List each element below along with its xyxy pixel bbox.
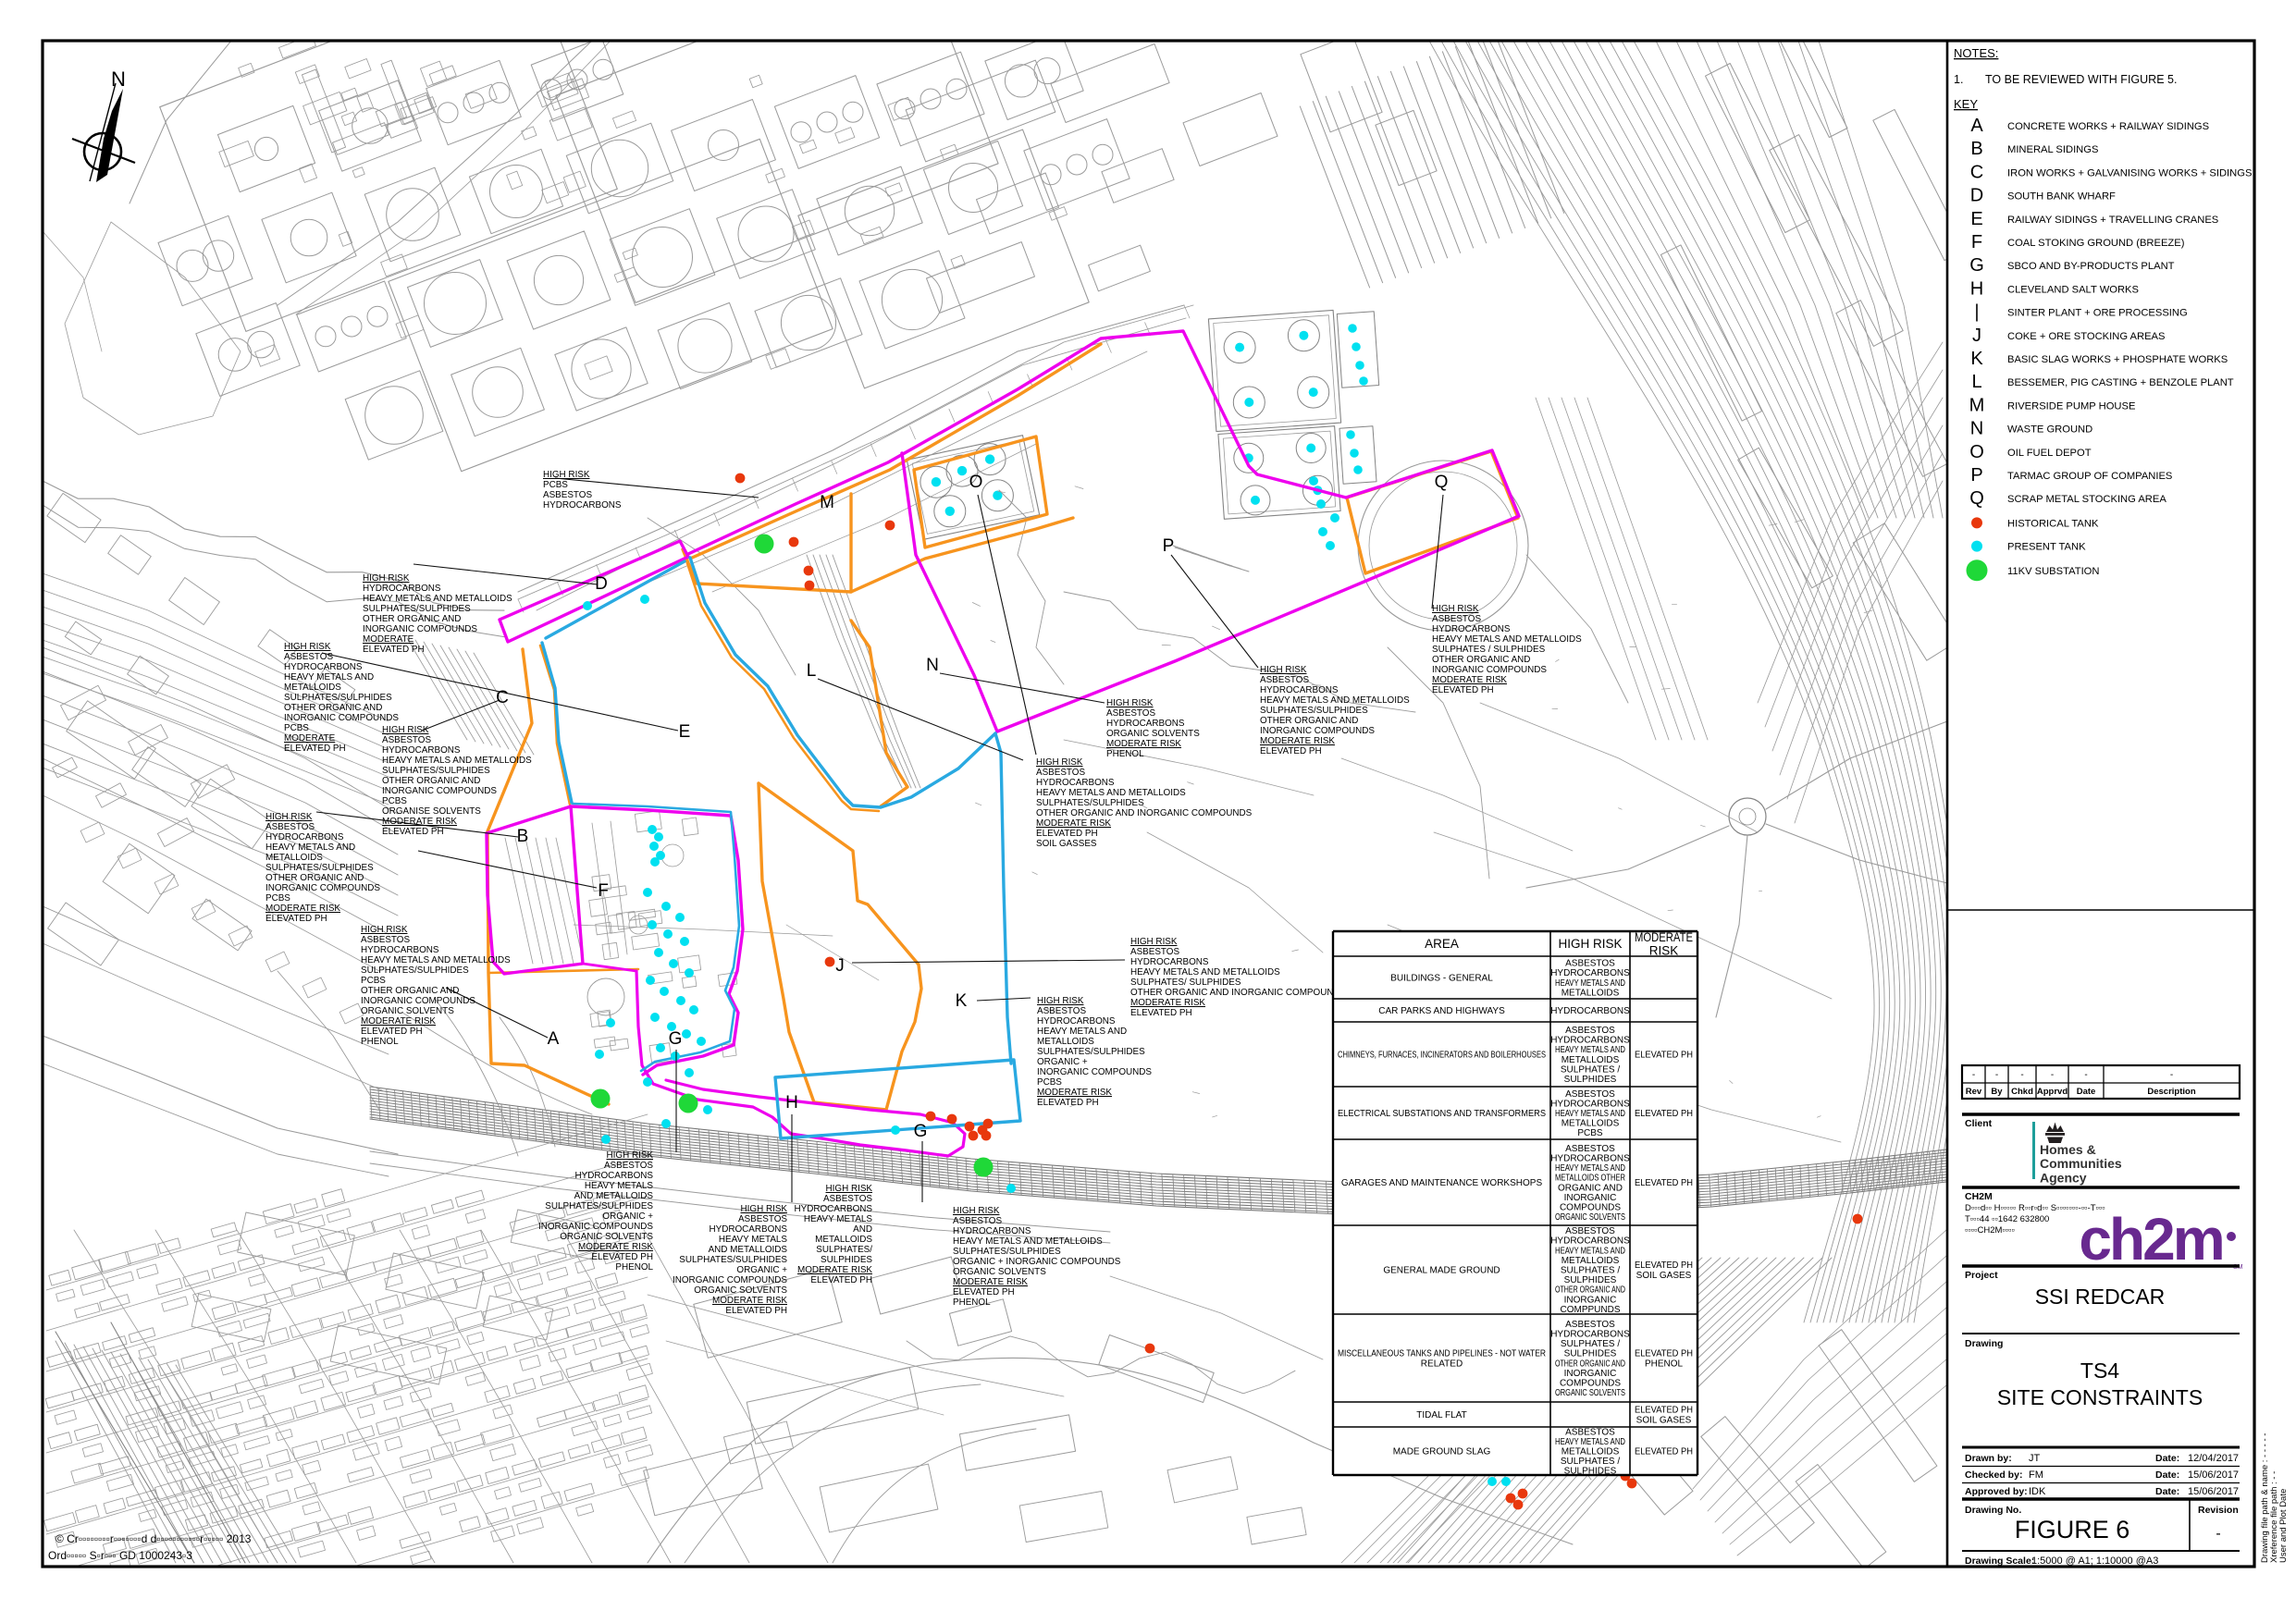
svg-text:ASBESTOS: ASBESTOS bbox=[1565, 1226, 1615, 1236]
svg-text:ORGANIC SOLVENTS: ORGANIC SOLVENTS bbox=[560, 1232, 653, 1242]
svg-text:ORGANIC + INORGANIC COMPOUNDS: ORGANIC + INORGANIC COMPOUNDS bbox=[953, 1257, 1121, 1267]
svg-text:HYDROCARBONS: HYDROCARBONS bbox=[1550, 1036, 1630, 1046]
svg-text:HIGH RISK: HIGH RISK bbox=[361, 925, 408, 935]
svg-text:MODERATE RISK: MODERATE RISK bbox=[1037, 1088, 1112, 1098]
svg-text:TIDAL FLAT: TIDAL FLAT bbox=[1416, 1410, 1466, 1420]
svg-text:A: A bbox=[548, 1029, 560, 1049]
svg-text:HYDROCARBONS: HYDROCARBONS bbox=[1550, 1006, 1630, 1016]
svg-text:-: - bbox=[2084, 1070, 2087, 1080]
svg-text:By: By bbox=[1991, 1087, 2003, 1097]
svg-text:TO BE REVIEWED WITH FIGURE 5.: TO BE REVIEWED WITH FIGURE 5. bbox=[1985, 73, 2177, 86]
svg-text:L: L bbox=[807, 661, 817, 681]
svg-text:ELEVATED PH: ELEVATED PH bbox=[591, 1252, 653, 1262]
svg-text:P: P bbox=[1970, 465, 1982, 486]
svg-text:HEAVY METALS AND: HEAVY METALS AND bbox=[1555, 1109, 1625, 1119]
svg-text:Drawn by:: Drawn by: bbox=[1965, 1453, 2012, 1464]
svg-text:ORGANIC SOLVENTS: ORGANIC SOLVENTS bbox=[361, 1006, 454, 1016]
svg-text:FIGURE 6: FIGURE 6 bbox=[2015, 1516, 2130, 1543]
svg-text:H: H bbox=[1970, 278, 1983, 299]
svg-text:HIGH RISK: HIGH RISK bbox=[1260, 665, 1307, 675]
svg-text:OTHER ORGANIC AND: OTHER ORGANIC AND bbox=[363, 614, 461, 624]
svg-text:SOIL GASES: SOIL GASES bbox=[1636, 1271, 1692, 1281]
svg-text:C: C bbox=[1970, 162, 1983, 182]
svg-text:SULPHATES/SULPHIDES: SULPHATES/SULPHIDES bbox=[545, 1201, 653, 1211]
svg-text:ELEVATED PH: ELEVATED PH bbox=[1635, 1109, 1693, 1119]
svg-text:Apprvd: Apprvd bbox=[2037, 1087, 2068, 1097]
svg-text:HEAVY METALS: HEAVY METALS bbox=[585, 1181, 653, 1191]
svg-text:SINTER PLANT + ORE PROCESSING: SINTER PLANT + ORE PROCESSING bbox=[2007, 308, 2188, 319]
svg-text:MODERATE RISK: MODERATE RISK bbox=[797, 1265, 872, 1275]
svg-text:12/04/2017: 12/04/2017 bbox=[2188, 1453, 2239, 1464]
svg-text:METALLOIDS: METALLOIDS bbox=[1037, 1037, 1094, 1047]
svg-text:MODERATE: MODERATE bbox=[284, 733, 336, 744]
svg-text:MINERAL SIDINGS: MINERAL SIDINGS bbox=[2007, 144, 2098, 155]
svg-text:HEAVY METALS AND METALLOIDS: HEAVY METALS AND METALLOIDS bbox=[361, 955, 511, 965]
svg-text:-: - bbox=[2170, 1070, 2173, 1080]
svg-text:SULPHATES / SULPHIDES: SULPHATES / SULPHIDES bbox=[1432, 645, 1546, 655]
svg-text:ELEVATED PH: ELEVATED PH bbox=[284, 744, 346, 754]
svg-text:HEAVY METALS AND METALLOIDS: HEAVY METALS AND METALLOIDS bbox=[363, 594, 512, 604]
svg-text:ELEVATED PH: ELEVATED PH bbox=[1635, 1051, 1693, 1061]
svg-text:MODERATE: MODERATE bbox=[1635, 930, 1693, 944]
svg-text:15/06/2017: 15/06/2017 bbox=[2188, 1469, 2239, 1481]
svg-text:ELEVATED PH: ELEVATED PH bbox=[1635, 1260, 1693, 1271]
svg-text:Approved by:: Approved by: bbox=[1965, 1486, 2028, 1497]
svg-text:HEAVY METALS: HEAVY METALS bbox=[719, 1235, 787, 1245]
svg-text:A: A bbox=[1970, 116, 1983, 136]
svg-text:N: N bbox=[926, 656, 939, 675]
svg-text:HIGH RISK: HIGH RISK bbox=[953, 1206, 1000, 1216]
svg-text:ASBESTOS: ASBESTOS bbox=[1565, 1089, 1615, 1100]
svg-text:D: D bbox=[1970, 186, 1983, 206]
svg-text:Description: Description bbox=[2147, 1087, 2195, 1097]
svg-text:G: G bbox=[669, 1029, 683, 1049]
svg-text:ASBESTOS: ASBESTOS bbox=[1565, 1144, 1615, 1154]
svg-text:OTHER ORGANIC AND: OTHER ORGANIC AND bbox=[1555, 1359, 1625, 1369]
svg-text:METALLOIDS: METALLOIDS bbox=[815, 1235, 872, 1245]
svg-text:OTHER ORGANIC AND: OTHER ORGANIC AND bbox=[1260, 716, 1358, 726]
svg-text:MODERATE: MODERATE bbox=[363, 634, 414, 645]
svg-text:IDK: IDK bbox=[2029, 1486, 2046, 1497]
svg-text:Agency: Agency bbox=[2040, 1170, 2087, 1185]
svg-text:-: - bbox=[2216, 1526, 2220, 1542]
svg-text:PHENOL: PHENOL bbox=[953, 1297, 991, 1308]
svg-text:ELEVATED PH: ELEVATED PH bbox=[1260, 746, 1322, 756]
svg-text:SULPHIDES: SULPHIDES bbox=[1564, 1349, 1617, 1359]
svg-text:OTHER ORGANIC AND INORGANIC CO: OTHER ORGANIC AND INORGANIC COMPOUNDS bbox=[1036, 808, 1253, 818]
svg-text:Checked by:: Checked by: bbox=[1965, 1469, 2022, 1481]
svg-text:HYDROCARBONS: HYDROCARBONS bbox=[1106, 719, 1185, 729]
svg-text:METALLOIDS: METALLOIDS bbox=[265, 853, 323, 863]
svg-text:PCBS: PCBS bbox=[1037, 1077, 1062, 1088]
svg-text:METALLOIDS: METALLOIDS bbox=[1562, 1447, 1620, 1457]
svg-text:HIGH RISK: HIGH RISK bbox=[826, 1184, 873, 1194]
svg-text:IRON WORKS + GALVANISING WORKS: IRON WORKS + GALVANISING WORKS + SIDINGS bbox=[2007, 167, 2252, 178]
svg-text:AREA: AREA bbox=[1425, 937, 1459, 951]
svg-text:ELEVATED PH: ELEVATED PH bbox=[1635, 1447, 1693, 1457]
svg-text:MODERATE RISK: MODERATE RISK bbox=[1036, 818, 1111, 829]
svg-text:SULPHATES/SULPHIDES: SULPHATES/SULPHIDES bbox=[382, 766, 490, 776]
svg-text:ELEVATED PH: ELEVATED PH bbox=[1130, 1008, 1192, 1018]
svg-text:ASBESTOS: ASBESTOS bbox=[382, 735, 431, 745]
svg-text:COMPOUNDS: COMPOUNDS bbox=[1560, 1203, 1621, 1213]
svg-text:G: G bbox=[1969, 255, 1984, 276]
svg-text:Client: Client bbox=[1965, 1118, 1993, 1129]
svg-text:SULPHATES/SULPHIDES: SULPHATES/SULPHIDES bbox=[1037, 1047, 1145, 1057]
svg-text:SULPHATES /: SULPHATES / bbox=[1561, 1266, 1620, 1276]
svg-text:JT: JT bbox=[2029, 1453, 2041, 1464]
svg-text:TS4: TS4 bbox=[2080, 1359, 2119, 1383]
svg-text:ASBESTOS: ASBESTOS bbox=[1130, 947, 1179, 957]
svg-text:HEAVY METALS AND METALLOIDS: HEAVY METALS AND METALLOIDS bbox=[1036, 788, 1186, 798]
svg-text:ELEVATED PH: ELEVATED PH bbox=[363, 645, 425, 655]
svg-text:HYDROCARBONS: HYDROCARBONS bbox=[1550, 1330, 1630, 1340]
svg-text:ASBESTOS: ASBESTOS bbox=[1260, 675, 1309, 685]
svg-text:HEAVY METALS AND: HEAVY METALS AND bbox=[1555, 1437, 1625, 1447]
svg-text:J: J bbox=[835, 956, 845, 976]
svg-text:Communities: Communities bbox=[2040, 1156, 2122, 1171]
svg-text:HYDROCARBONS: HYDROCARBONS bbox=[382, 745, 461, 756]
svg-text:HIGH RISK: HIGH RISK bbox=[265, 812, 313, 822]
svg-text:ELEVATED PH: ELEVATED PH bbox=[1635, 1406, 1693, 1416]
svg-text:HEAVY METALS AND: HEAVY METALS AND bbox=[1555, 1246, 1625, 1256]
svg-text:SBCO AND BY-PRODUCTS PLANT: SBCO AND BY-PRODUCTS PLANT bbox=[2007, 261, 2175, 272]
svg-text:Rev: Rev bbox=[1966, 1087, 1982, 1097]
svg-text:SULPHATES/SULPHIDES: SULPHATES/SULPHIDES bbox=[363, 604, 471, 614]
svg-text:AND METALLOIDS: AND METALLOIDS bbox=[574, 1191, 654, 1201]
svg-text:PCBS: PCBS bbox=[361, 976, 386, 986]
svg-text:HYDROCARBONS: HYDROCARBONS bbox=[710, 1224, 788, 1235]
svg-text:T▫▫▫44 ▫▫1642 632800: T▫▫▫44 ▫▫1642 632800 bbox=[1965, 1214, 2049, 1224]
svg-text:ELEVATED PH: ELEVATED PH bbox=[725, 1306, 787, 1316]
svg-text:Drawing Scale:: Drawing Scale: bbox=[1965, 1555, 2034, 1567]
svg-text:SULPHATES/SULPHIDES: SULPHATES/SULPHIDES bbox=[1260, 706, 1368, 716]
svg-text:HIGH RISK: HIGH RISK bbox=[607, 1150, 654, 1161]
svg-text:G: G bbox=[914, 1122, 928, 1141]
svg-text:HYDROCARBONS: HYDROCARBONS bbox=[575, 1171, 654, 1181]
svg-text:OTHER ORGANIC AND: OTHER ORGANIC AND bbox=[1555, 1285, 1625, 1296]
svg-text:SULPHATES/SULPHIDES: SULPHATES/SULPHIDES bbox=[361, 965, 469, 976]
svg-text:PHENOL: PHENOL bbox=[615, 1262, 653, 1273]
svg-text:HEAVY METALS AND: HEAVY METALS AND bbox=[1555, 1163, 1625, 1174]
svg-text:ASBESTOS: ASBESTOS bbox=[1565, 1026, 1615, 1036]
svg-text:MODERATE RISK: MODERATE RISK bbox=[953, 1277, 1028, 1287]
svg-text:ASBESTOS: ASBESTOS bbox=[1565, 1320, 1615, 1330]
svg-text:MODERATE RISK: MODERATE RISK bbox=[712, 1296, 787, 1306]
svg-text:METALLOIDS: METALLOIDS bbox=[284, 682, 341, 693]
svg-text:-: - bbox=[2020, 1070, 2023, 1080]
svg-text:ORGANIC SOLVENTS: ORGANIC SOLVENTS bbox=[1555, 1388, 1625, 1398]
svg-text:N: N bbox=[111, 68, 126, 91]
svg-text:TARMAC GROUP OF COMPANIES: TARMAC GROUP OF COMPANIES bbox=[2007, 471, 2172, 482]
svg-text:▫▫▫▫CH2M▫▫▫▫: ▫▫▫▫CH2M▫▫▫▫ bbox=[1965, 1225, 2015, 1236]
svg-text:HYDROCARBONS: HYDROCARBONS bbox=[363, 584, 441, 594]
svg-text:PCBS: PCBS bbox=[284, 723, 309, 733]
svg-text:O: O bbox=[1969, 442, 1984, 462]
svg-text:SULPHATES/ SULPHIDES: SULPHATES/ SULPHIDES bbox=[1130, 977, 1241, 988]
svg-text:HIGH RISK: HIGH RISK bbox=[741, 1204, 788, 1214]
svg-text:HYDROCARBONS: HYDROCARBONS bbox=[1130, 957, 1209, 967]
svg-text:OTHER ORGANIC AND: OTHER ORGANIC AND bbox=[1432, 655, 1530, 665]
svg-text:ASBESTOS: ASBESTOS bbox=[823, 1194, 872, 1204]
svg-text:ELEVATED PH: ELEVATED PH bbox=[1037, 1098, 1099, 1108]
svg-text:SCRAP METAL STOCKING AREA: SCRAP METAL STOCKING AREA bbox=[2007, 494, 2166, 505]
svg-text:SULPHATES/SULPHIDES: SULPHATES/SULPHIDES bbox=[284, 693, 392, 703]
svg-text:HEAVY METALS AND METALLOIDS: HEAVY METALS AND METALLOIDS bbox=[1432, 634, 1582, 645]
svg-text:HEAVY METALS AND METALLOIDS: HEAVY METALS AND METALLOIDS bbox=[382, 756, 532, 766]
svg-text:ELECTRICAL SUBSTATIONS AND TRA: ELECTRICAL SUBSTATIONS AND TRANSFORMERS bbox=[1338, 1109, 1546, 1119]
svg-text:PHENOL: PHENOL bbox=[1106, 749, 1144, 759]
svg-text:COMPOUNDS: COMPOUNDS bbox=[1560, 1379, 1621, 1389]
svg-text:INORGANIC: INORGANIC bbox=[1564, 1295, 1617, 1305]
svg-text:SULPHATES/SULPHIDES: SULPHATES/SULPHIDES bbox=[679, 1255, 787, 1265]
svg-text:ORGANIC +: ORGANIC + bbox=[1037, 1057, 1088, 1067]
svg-text:SULPHATES /: SULPHATES / bbox=[1561, 1339, 1620, 1349]
svg-text:HYDROCARBONS: HYDROCARBONS bbox=[795, 1204, 873, 1214]
svg-text:GENERAL MADE GROUND: GENERAL MADE GROUND bbox=[1383, 1266, 1500, 1276]
svg-text:Q: Q bbox=[1435, 473, 1449, 492]
svg-text:METALLOIDS: METALLOIDS bbox=[1562, 988, 1620, 998]
svg-text:INORGANIC: INORGANIC bbox=[1564, 1193, 1617, 1203]
svg-text:Drawing No.: Drawing No. bbox=[1965, 1505, 2021, 1516]
svg-text:SULPHATES/SULPHIDES: SULPHATES/SULPHIDES bbox=[265, 863, 374, 873]
svg-text:Date:: Date: bbox=[2155, 1486, 2179, 1497]
svg-text:M: M bbox=[1969, 395, 1985, 415]
svg-text:HIGH RISK: HIGH RISK bbox=[1558, 937, 1622, 951]
svg-text:INORGANIC COMPOUNDS: INORGANIC COMPOUNDS bbox=[1432, 665, 1547, 675]
svg-text:PHENOL: PHENOL bbox=[1645, 1359, 1684, 1369]
svg-text:HEAVY METALS AND METALLOIDS: HEAVY METALS AND METALLOIDS bbox=[1130, 967, 1280, 977]
svg-text:COKE + ORE STOCKING AREAS: COKE + ORE STOCKING AREAS bbox=[2007, 331, 2165, 342]
svg-text:HYDROCARBONS: HYDROCARBONS bbox=[1550, 1236, 1630, 1247]
svg-text:PCBS: PCBS bbox=[543, 480, 568, 490]
svg-text:NOTES:: NOTES: bbox=[1954, 46, 1998, 60]
svg-text:HYDROCARBONS: HYDROCARBONS bbox=[543, 500, 622, 510]
svg-text:ORGANIC +: ORGANIC + bbox=[602, 1211, 653, 1222]
svg-text:METALLOIDS: METALLOIDS bbox=[1562, 1256, 1620, 1266]
svg-text:11KV SUBSTATION: 11KV SUBSTATION bbox=[2007, 566, 2099, 577]
svg-text:HEAVY METALS: HEAVY METALS bbox=[804, 1214, 872, 1224]
svg-text:MODERATE RISK: MODERATE RISK bbox=[265, 904, 340, 914]
svg-text:INORGANIC: INORGANIC bbox=[1564, 1369, 1617, 1379]
svg-text:HIGH RISK: HIGH RISK bbox=[1037, 996, 1084, 1006]
svg-text:M: M bbox=[820, 493, 834, 512]
svg-text:Homes &: Homes & bbox=[2040, 1142, 2096, 1157]
svg-text:Date:: Date: bbox=[2155, 1453, 2179, 1464]
svg-text:INORGANIC COMPOUNDS: INORGANIC COMPOUNDS bbox=[538, 1222, 653, 1232]
svg-text:WASTE GROUND: WASTE GROUND bbox=[2007, 424, 2092, 436]
svg-text:RELATED: RELATED bbox=[1421, 1359, 1463, 1369]
svg-text:METALLOIDS OTHER: METALLOIDS OTHER bbox=[1555, 1174, 1625, 1184]
svg-text:CAR PARKS AND HIGHWAYS: CAR PARKS AND HIGHWAYS bbox=[1378, 1006, 1505, 1016]
svg-text:ORGANIC +: ORGANIC + bbox=[736, 1265, 787, 1275]
svg-text:K: K bbox=[1970, 349, 1983, 369]
svg-text:INORGANIC COMPOUNDS: INORGANIC COMPOUNDS bbox=[1260, 726, 1375, 736]
svg-text:BESSEMER, PIG CASTING + BENZOL: BESSEMER, PIG CASTING + BENZOLE PLANT bbox=[2007, 377, 2234, 388]
svg-text:CLEVELAND SALT WORKS: CLEVELAND SALT WORKS bbox=[2007, 284, 2139, 295]
svg-text:L: L bbox=[1971, 372, 1981, 392]
svg-text:FM: FM bbox=[2029, 1469, 2043, 1481]
svg-text:ASBESTOS: ASBESTOS bbox=[1432, 614, 1481, 624]
svg-text:Revision: Revision bbox=[2198, 1505, 2239, 1516]
svg-text:HEAVY METALS AND: HEAVY METALS AND bbox=[1555, 978, 1625, 989]
svg-text:SULPHATES/SULPHIDES: SULPHATES/SULPHIDES bbox=[1036, 798, 1144, 808]
svg-text:HYDROCARBONS: HYDROCARBONS bbox=[1550, 1154, 1630, 1164]
svg-text:Date:: Date: bbox=[2155, 1469, 2179, 1481]
svg-text:PCBS: PCBS bbox=[1577, 1128, 1603, 1138]
svg-text:MODERATE RISK: MODERATE RISK bbox=[1106, 739, 1181, 749]
svg-text:SOIL GASSES: SOIL GASSES bbox=[1036, 839, 1097, 849]
svg-text:E: E bbox=[1970, 209, 1982, 229]
svg-text:HYDROCARBONS: HYDROCARBONS bbox=[1432, 624, 1511, 634]
svg-text:MODERATE RISK: MODERATE RISK bbox=[1130, 998, 1205, 1008]
svg-text:BUILDINGS - GENERAL: BUILDINGS - GENERAL bbox=[1390, 974, 1493, 984]
svg-text:PCBS: PCBS bbox=[382, 796, 407, 806]
svg-text:METALLOIDS: METALLOIDS bbox=[1562, 1055, 1620, 1065]
svg-text:HYDROCARBONS: HYDROCARBONS bbox=[361, 945, 439, 955]
svg-text:SULPHATES/: SULPHATES/ bbox=[816, 1245, 872, 1255]
svg-text:ASBESTOS: ASBESTOS bbox=[1036, 768, 1085, 778]
svg-text:HIGH RISK: HIGH RISK bbox=[1036, 757, 1083, 768]
svg-text:SULPHATES/SULPHIDES: SULPHATES/SULPHIDES bbox=[953, 1247, 1061, 1257]
svg-text:HIGH RISK: HIGH RISK bbox=[1130, 937, 1178, 947]
svg-text:© Cr▫▫▫▫▫▫▫▫r▫▫▫▫▫▫▫d d: © Cr▫▫▫▫▫▫▫▫r▫▫▫▫▫▫▫d d▫▫▫▫▫▫▫▫▫▫▫r▫▫▫▫▫… bbox=[56, 1532, 252, 1545]
svg-text:ch2m: ch2m bbox=[2079, 1206, 2222, 1273]
svg-text:Date: Date bbox=[2077, 1087, 2096, 1097]
svg-text:ELEVATED PH: ELEVATED PH bbox=[810, 1275, 872, 1285]
svg-text:HEAVY METALS AND METALLOIDS: HEAVY METALS AND METALLOIDS bbox=[953, 1236, 1103, 1247]
svg-text:AND: AND bbox=[853, 1224, 872, 1235]
svg-text:OTHER ORGANIC AND: OTHER ORGANIC AND bbox=[382, 776, 480, 786]
svg-text:-: - bbox=[1995, 1070, 1998, 1080]
svg-text:PCBS: PCBS bbox=[265, 893, 290, 904]
svg-text:BASIC SLAG WORKS + PHOSPHATE W: BASIC SLAG WORKS + PHOSPHATE WORKS bbox=[2007, 354, 2228, 365]
svg-text:E: E bbox=[679, 722, 691, 742]
svg-text:HEAVY METALS AND: HEAVY METALS AND bbox=[1037, 1027, 1127, 1037]
svg-text:HYDROCARBONS: HYDROCARBONS bbox=[284, 662, 363, 672]
svg-text:HIGH RISK: HIGH RISK bbox=[1106, 698, 1154, 708]
svg-text:ORGANIC AND: ORGANIC AND bbox=[1558, 1183, 1623, 1193]
svg-text:HIGH RISK: HIGH RISK bbox=[363, 573, 410, 584]
svg-text:OTHER ORGANIC AND INORGANIC CO: OTHER ORGANIC AND INORGANIC COMPOUNDS bbox=[1130, 988, 1347, 998]
svg-text:SULPHIDES: SULPHIDES bbox=[1564, 1275, 1617, 1285]
svg-text:Chkd: Chkd bbox=[2011, 1087, 2033, 1097]
svg-text:ASBESTOS: ASBESTOS bbox=[953, 1216, 1002, 1226]
svg-text:ELEVATED PH: ELEVATED PH bbox=[382, 827, 444, 837]
svg-text:ASBESTOS: ASBESTOS bbox=[265, 822, 315, 832]
svg-text:B: B bbox=[517, 827, 529, 846]
svg-text:MODERATE RISK: MODERATE RISK bbox=[1432, 675, 1507, 685]
svg-text:H: H bbox=[785, 1093, 798, 1113]
svg-text:ELEVATED PH: ELEVATED PH bbox=[1432, 685, 1494, 695]
svg-text:ORGANIC SOLVENTS: ORGANIC SOLVENTS bbox=[953, 1267, 1046, 1277]
svg-text:GARAGES AND MAINTENANCE WORKSH: GARAGES AND MAINTENANCE WORKSHOPS bbox=[1341, 1178, 1543, 1188]
svg-text:HIGH RISK: HIGH RISK bbox=[1432, 604, 1479, 614]
svg-text:MODERATE RISK: MODERATE RISK bbox=[382, 817, 457, 827]
svg-text:AND METALLOIDS: AND METALLOIDS bbox=[709, 1245, 788, 1255]
svg-text:OTHER ORGANIC AND: OTHER ORGANIC AND bbox=[361, 986, 459, 996]
svg-text:Project: Project bbox=[1965, 1270, 1998, 1281]
svg-text:ELEVATED PH: ELEVATED PH bbox=[361, 1027, 423, 1037]
svg-text:INORGANIC COMPOUNDS: INORGANIC COMPOUNDS bbox=[265, 883, 380, 893]
svg-text:F: F bbox=[598, 881, 609, 901]
svg-text:-: - bbox=[2051, 1070, 2054, 1080]
svg-text:-: - bbox=[1972, 1070, 1975, 1080]
svg-text:MODERATE RISK: MODERATE RISK bbox=[1260, 736, 1335, 746]
svg-text:SOIL GASES: SOIL GASES bbox=[1636, 1415, 1692, 1425]
svg-text:HEAVY METALS AND METALLOIDS: HEAVY METALS AND METALLOIDS bbox=[1260, 695, 1410, 706]
svg-text:ORGANISE SOLVENTS: ORGANISE SOLVENTS bbox=[382, 806, 481, 817]
svg-text:SSI REDCAR: SSI REDCAR bbox=[2035, 1285, 2166, 1309]
svg-text:CH2M: CH2M bbox=[1965, 1191, 1993, 1202]
svg-text:SULPHIDES: SULPHIDES bbox=[1564, 1075, 1617, 1085]
svg-text:INORGANIC COMPOUNDS: INORGANIC COMPOUNDS bbox=[382, 786, 497, 796]
svg-text:N: N bbox=[1970, 419, 1983, 439]
svg-text:OTHER ORGANIC AND: OTHER ORGANIC AND bbox=[284, 703, 382, 713]
svg-text:INORGANIC COMPOUNDS: INORGANIC COMPOUNDS bbox=[363, 624, 477, 634]
svg-text:HIGH RISK: HIGH RISK bbox=[382, 725, 429, 735]
svg-text:P: P bbox=[1163, 536, 1175, 556]
svg-text:HIGH RISK: HIGH RISK bbox=[284, 642, 331, 652]
svg-text:D: D bbox=[595, 574, 608, 594]
svg-text:INORGANIC COMPOUNDS: INORGANIC COMPOUNDS bbox=[284, 713, 399, 723]
svg-text:HYDROCARBONS: HYDROCARBONS bbox=[1260, 685, 1339, 695]
svg-text:INORGANIC COMPOUNDS: INORGANIC COMPOUNDS bbox=[673, 1275, 787, 1285]
svg-text:ELEVATED PH: ELEVATED PH bbox=[1635, 1178, 1693, 1188]
svg-text:RAILWAY SIDINGS + TRAVELLING C: RAILWAY SIDINGS + TRAVELLING CRANES bbox=[2007, 215, 2218, 226]
svg-text:HEAVY METALS AND: HEAVY METALS AND bbox=[1555, 1045, 1625, 1055]
svg-text:ASBESTOS: ASBESTOS bbox=[1565, 959, 1615, 969]
svg-text:Drawing: Drawing bbox=[1965, 1338, 2003, 1349]
svg-text:HEAVY METALS AND: HEAVY METALS AND bbox=[265, 842, 355, 853]
svg-text:PHENOL: PHENOL bbox=[361, 1037, 399, 1047]
svg-text:HYDROCARBONS: HYDROCARBONS bbox=[1036, 778, 1115, 788]
svg-text:METALLOIDS: METALLOIDS bbox=[1562, 1119, 1620, 1129]
svg-text:|: | bbox=[1974, 302, 1979, 323]
svg-text:ASBESTOS: ASBESTOS bbox=[543, 490, 592, 500]
svg-text:HYDROCARBONS: HYDROCARBONS bbox=[1037, 1016, 1116, 1027]
svg-text:Q: Q bbox=[1969, 488, 1984, 509]
svg-text:ASBESTOS: ASBESTOS bbox=[1106, 708, 1155, 719]
svg-text:ASBESTOS: ASBESTOS bbox=[1565, 1427, 1615, 1437]
svg-text:ELEVATED PH: ELEVATED PH bbox=[265, 914, 327, 924]
svg-text:RIVERSIDE PUMP HOUSE: RIVERSIDE PUMP HOUSE bbox=[2007, 400, 2135, 412]
svg-text:HEAVY METALS AND: HEAVY METALS AND bbox=[284, 672, 374, 682]
svg-text:HYDROCARBONS: HYDROCARBONS bbox=[1550, 1099, 1630, 1109]
svg-text:INORGANIC COMPOUNDS: INORGANIC COMPOUNDS bbox=[361, 996, 475, 1006]
svg-text:ELEVATED PH: ELEVATED PH bbox=[1635, 1349, 1693, 1359]
svg-text:CONCRETE WORKS + RAILWAY SIDIN: CONCRETE WORKS + RAILWAY SIDINGS bbox=[2007, 121, 2209, 132]
svg-text:MODERATE RISK: MODERATE RISK bbox=[361, 1016, 436, 1027]
svg-text:O: O bbox=[969, 473, 983, 492]
svg-text:15/06/2017: 15/06/2017 bbox=[2188, 1486, 2239, 1497]
svg-text:ASBESTOS: ASBESTOS bbox=[738, 1214, 787, 1224]
svg-text:MADE GROUND SLAG: MADE GROUND SLAG bbox=[1393, 1447, 1491, 1457]
svg-text:ASBESTOS: ASBESTOS bbox=[604, 1161, 653, 1171]
svg-text:KEY: KEY bbox=[1954, 97, 1978, 111]
svg-text:INORGANIC COMPOUNDS: INORGANIC COMPOUNDS bbox=[1037, 1067, 1152, 1077]
svg-text:1.: 1. bbox=[1954, 73, 1963, 86]
svg-text:ELEVATED PH: ELEVATED PH bbox=[953, 1287, 1015, 1297]
svg-text:SULPHIDES: SULPHIDES bbox=[821, 1255, 872, 1265]
svg-text:HISTORICAL TANK: HISTORICAL TANK bbox=[2007, 518, 2099, 529]
svg-text:ORGANIC SOLVENTS: ORGANIC SOLVENTS bbox=[694, 1285, 787, 1296]
svg-text:Ord▫▫▫▫▫ S▫r▫▫▫ GD 1000243▫3: Ord▫▫▫▫▫ S▫r▫▫▫ GD 1000243▫3 bbox=[48, 1549, 192, 1562]
svg-text:CHIMNEYS, FURNACES, INCINERATO: CHIMNEYS, FURNACES, INCINERATORS AND BOI… bbox=[1338, 1051, 1546, 1061]
svg-text:1:5000 @ A1; 1:10000 @A3: 1:5000 @ A1; 1:10000 @A3 bbox=[2031, 1555, 2158, 1567]
svg-text:C: C bbox=[496, 688, 509, 707]
svg-text:ASBESTOS: ASBESTOS bbox=[1037, 1006, 1086, 1016]
